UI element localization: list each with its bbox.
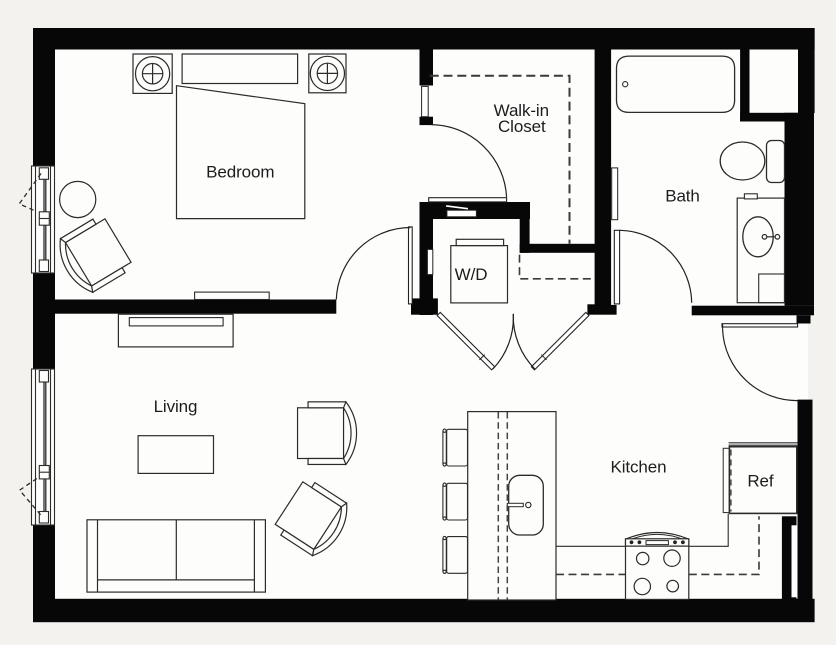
svg-text:Ref: Ref xyxy=(747,472,774,491)
svg-text:Living: Living xyxy=(154,397,198,416)
svg-text:Bath: Bath xyxy=(665,187,700,206)
svg-text:Kitchen: Kitchen xyxy=(610,457,666,476)
svg-text:Bedroom: Bedroom xyxy=(206,163,274,182)
svg-text:W/D: W/D xyxy=(455,265,488,284)
svg-text:Closet: Closet xyxy=(498,117,546,136)
